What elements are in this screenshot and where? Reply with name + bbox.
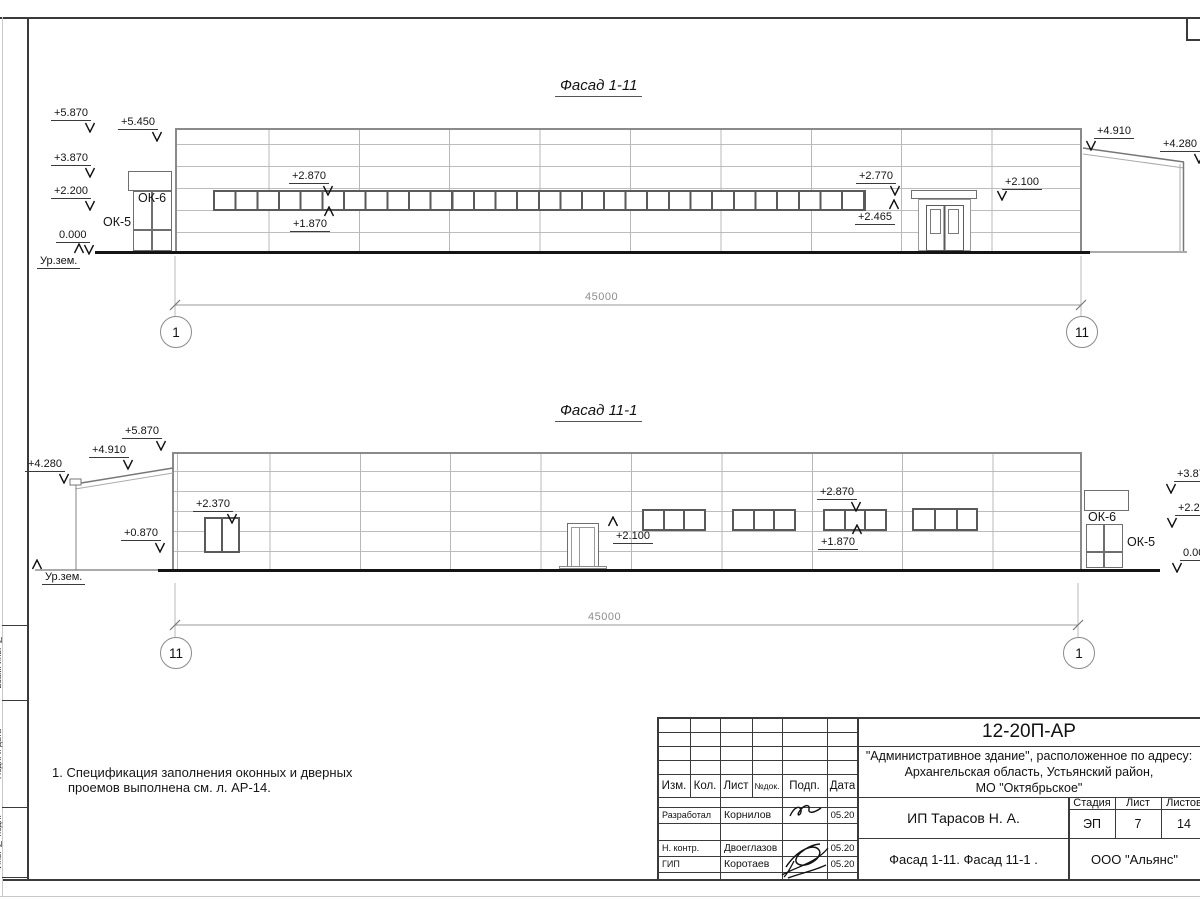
facade1-annex — [1083, 148, 1184, 251]
axis-bubble: 1 — [160, 316, 192, 348]
elevation-arrow-down-icon — [84, 167, 96, 178]
drawing-sheet: Взам. инв. № Подп. и дата Инв. № подл. Ф… — [0, 0, 1200, 900]
elevation-value: +2.465 — [855, 211, 895, 225]
elevation-value: +4.910 — [1094, 125, 1134, 139]
row-developed-date: 05.20 — [827, 807, 858, 823]
row-developed-name: Корнилов — [720, 807, 782, 823]
elevation-arrow-down-icon — [58, 473, 70, 484]
elevation-mark: +2.465 — [855, 211, 895, 225]
titleblock-address-line3: МО "Октябрьское" — [858, 780, 1200, 796]
elevation-value: +4.910 — [89, 444, 129, 458]
titleblock-drawing-title: Фасад 1-11. Фасад 11-1 . — [858, 838, 1069, 880]
span-dimension: 45000 — [588, 611, 621, 623]
elevation-arrow-down-icon — [996, 190, 1008, 201]
elevation-arrow-up-icon — [323, 206, 335, 217]
elevation-arrow-up-icon — [888, 199, 900, 210]
facade2-ground-line — [35, 570, 1160, 571]
elevation-arrow-down-icon — [84, 200, 96, 211]
titleblock-address-line2: Архангельская область, Устьянский район, — [858, 764, 1200, 780]
facade2-ok6-window — [1084, 490, 1129, 511]
elevation-arrow-down-icon — [322, 185, 334, 196]
elevation-value: Ур.зем. — [37, 255, 80, 269]
col-list: Лист — [720, 774, 752, 797]
elevation-mark: +2.870 — [817, 486, 857, 500]
sheet-bottom-edge — [0, 896, 1200, 897]
window-tag-text: ОК-6 — [1088, 510, 1116, 524]
axis-bubble: 11 — [1066, 316, 1098, 348]
elevation-arrow-down-icon — [889, 185, 901, 196]
col-kol: Кол. — [690, 774, 720, 797]
facade2-window — [732, 509, 796, 531]
elevation-value: +4.280 — [1160, 138, 1200, 152]
elevation-value: +1.870 — [290, 218, 330, 232]
elevation-mark: +2.100 — [613, 530, 653, 544]
side-strip-divider — [2, 877, 27, 878]
signature-developed — [786, 801, 826, 821]
elevation-value: +2.870 — [289, 170, 329, 184]
elevation-arrow-down-icon — [1171, 562, 1183, 573]
elevation-value: +5.450 — [118, 116, 158, 130]
facade2-door-leaf — [571, 527, 595, 568]
elevation-arrow-up-icon — [31, 559, 43, 570]
facade1-door-glass — [948, 209, 959, 234]
side-strip-divider — [2, 700, 27, 701]
signature-gip — [776, 835, 834, 879]
elevation-arrow-down-icon — [226, 513, 238, 524]
col-ndok: №док. — [752, 774, 782, 797]
window-tag-text: ОК-5 — [103, 215, 131, 229]
axis-number: 11 — [169, 646, 183, 661]
axis-number: 1 — [1075, 646, 1083, 661]
facade1-title: Фасад 1-11 — [555, 77, 642, 97]
facade2-dimension — [170, 583, 1083, 638]
frame-top-border — [0, 17, 1200, 19]
col-izm: Изм. — [658, 774, 690, 797]
side-strip-divider — [2, 807, 27, 808]
sheets-total-header: Листов — [1161, 796, 1200, 809]
elevation-mark: +4.280 — [1160, 138, 1200, 152]
facade2-door-step — [559, 566, 607, 569]
ground-level-mark: Ур.зем. — [42, 571, 85, 585]
window-tag: ОК-6 — [138, 191, 166, 205]
side-strip-label: Взам. инв. № — [0, 635, 3, 689]
facade2-window — [912, 508, 978, 531]
side-strip-label: Инв. № подл. — [0, 815, 3, 869]
elevation-arrow-down-icon — [151, 131, 163, 142]
elevation-value: +0.870 — [121, 527, 161, 541]
facade2-title: Фасад 11-1 — [555, 402, 642, 422]
elevation-arrow-down-icon — [84, 122, 96, 133]
facade1-ok6-window — [128, 171, 172, 191]
row-ncontrol-name: Двоеглазов — [720, 840, 782, 856]
titleblock-client: ИП Тарасов Н. А. — [858, 797, 1069, 838]
elevation-value: +3.870 — [1174, 468, 1200, 482]
elevation-arrow-down-icon — [1085, 140, 1097, 151]
elevation-mark: +3.870 — [51, 152, 91, 166]
elevation-mark: +5.870 — [51, 107, 91, 121]
facade2-window — [642, 509, 706, 531]
elevation-value: +2.200 — [51, 185, 91, 199]
col-data: Дата — [827, 774, 858, 797]
sheet-number: 7 — [1115, 809, 1161, 838]
side-strip-cell: Инв. № подл. — [0, 809, 26, 875]
elevation-value: +2.370 — [193, 498, 233, 512]
elevation-value: 0.000 — [1180, 547, 1200, 561]
row-ncontrol-label: Н. контр. — [658, 840, 720, 856]
elevation-arrow-down-icon — [122, 459, 134, 470]
stage-value: ЭП — [1069, 809, 1115, 838]
elevation-mark: +4.280 — [25, 458, 65, 472]
elevation-mark: +2.200 — [1175, 502, 1200, 516]
window-tag: ОК-5 — [103, 215, 131, 229]
ground-level-mark: Ур.зем. — [37, 255, 80, 269]
elevation-mark: +2.370 — [193, 498, 233, 512]
elevation-value: +2.100 — [613, 530, 653, 544]
elevation-mark: +2.200 — [51, 185, 91, 199]
elevation-mark: +4.910 — [89, 444, 129, 458]
row-developed-label: Разработал — [658, 807, 720, 823]
elevation-mark: +1.870 — [290, 218, 330, 232]
elevation-value: +2.200 — [1175, 502, 1200, 516]
elevation-mark: +2.870 — [289, 170, 329, 184]
window-tag-text: ОК-5 — [1127, 535, 1155, 549]
elevation-value: +5.870 — [122, 425, 162, 439]
axis-bubble: 11 — [160, 637, 192, 669]
elevation-value: +1.870 — [818, 536, 858, 550]
sheet-header: Лист — [1115, 796, 1161, 809]
axis-number: 1 — [172, 325, 180, 340]
titleblock-doc-number: 12-20П-АР — [858, 718, 1200, 746]
facade1-ground-line — [95, 252, 1187, 253]
facade2-annex — [70, 468, 173, 570]
elevation-arrow-down-icon — [154, 542, 166, 553]
window-tag: ОК-6 — [1088, 510, 1116, 524]
frame-left-border — [27, 17, 29, 879]
elevation-mark: +1.870 — [818, 536, 858, 550]
facade1-door-canopy — [911, 190, 977, 199]
elevation-arrow-up-icon — [851, 524, 863, 535]
facade1-dimension — [170, 256, 1086, 318]
col-podp: Подп. — [782, 774, 827, 797]
elevation-value: +4.280 — [25, 458, 65, 472]
elevation-mark: +2.100 — [1002, 176, 1042, 190]
row-gip-label: ГИП — [658, 856, 720, 872]
elevation-value: Ур.зем. — [42, 571, 85, 585]
elevation-arrow-up-icon — [73, 243, 85, 254]
elevation-arrow-down-icon — [1166, 517, 1178, 528]
note-line-2: проемов выполнена см. л. АР-14. — [68, 780, 271, 795]
elevation-mark: +0.870 — [121, 527, 161, 541]
frame-corner-notch-h — [1186, 39, 1200, 41]
side-strip-label: Подп. и дата — [0, 728, 3, 778]
elevation-value: +3.870 — [51, 152, 91, 166]
side-strip-divider — [2, 625, 27, 626]
frame-corner-notch-v — [1186, 17, 1188, 40]
facade1-door-glass — [930, 209, 941, 234]
elevation-mark: 0.000 — [1180, 547, 1200, 561]
facade2-ok5-glazing — [1086, 524, 1123, 568]
window-tag-text: ОК-6 — [138, 191, 166, 205]
side-strip-cell: Взам. инв. № — [0, 627, 26, 697]
elevation-arrow-down-icon — [1165, 483, 1177, 494]
facade1-window-band — [213, 190, 866, 211]
elevation-arrow-down-icon — [155, 440, 167, 451]
elevation-mark: +5.870 — [122, 425, 162, 439]
elevation-mark: +4.910 — [1094, 125, 1134, 139]
elevation-mark: +5.450 — [118, 116, 158, 130]
axis-number: 11 — [1075, 325, 1089, 340]
elevation-mark: +3.870 — [1174, 468, 1200, 482]
window-tag: ОК-5 — [1127, 535, 1155, 549]
elevation-value: +5.870 — [51, 107, 91, 121]
titleblock-company: ООО "Альянс" — [1069, 838, 1200, 880]
note-line-1: 1. Спецификация заполнения оконных и две… — [52, 765, 352, 780]
elevation-arrow-up-icon — [607, 516, 619, 527]
stage-header: Стадия — [1069, 796, 1115, 809]
elevation-mark: 0.000 — [56, 229, 90, 243]
titleblock-address-line1: "Административное здание", расположенное… — [858, 748, 1200, 764]
elevation-value: +2.870 — [817, 486, 857, 500]
side-strip-cell: Подп. и дата — [0, 702, 26, 805]
elevation-value: +2.770 — [856, 170, 896, 184]
row-gip-name: Коротаев — [720, 856, 782, 872]
elevation-value: +2.100 — [1002, 176, 1042, 190]
axis-bubble: 1 — [1063, 637, 1095, 669]
sheets-total: 14 — [1161, 809, 1200, 838]
elevation-mark: +2.770 — [856, 170, 896, 184]
span-dimension: 45000 — [585, 291, 618, 303]
elevation-arrow-down-icon — [1193, 153, 1200, 164]
elevation-arrow-down-icon — [850, 501, 862, 512]
elevation-value: 0.000 — [56, 229, 90, 243]
